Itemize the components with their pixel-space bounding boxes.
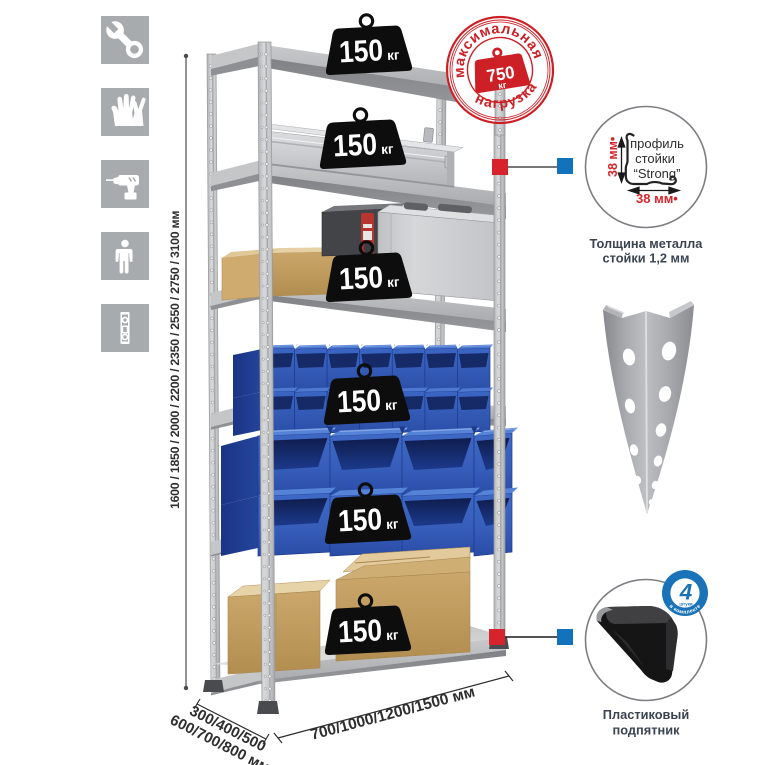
svg-text:1600 / 1850 / 2000 / 2200 / 23: 1600 / 1850 / 2000 / 2200 / 2350 / 2550 … bbox=[168, 211, 182, 509]
svg-text:профиль: профиль bbox=[630, 136, 684, 151]
svg-text:150: 150 bbox=[337, 502, 383, 538]
svg-text:стойки 1,2 мм: стойки 1,2 мм bbox=[602, 251, 689, 266]
svg-text:38 мм•: 38 мм• bbox=[636, 191, 678, 206]
svg-text:кг: кг bbox=[387, 47, 401, 63]
svg-text:150: 150 bbox=[337, 613, 383, 649]
svg-text:150: 150 bbox=[338, 260, 384, 296]
svg-text:150: 150 bbox=[338, 33, 384, 69]
svg-text:150: 150 bbox=[336, 383, 382, 419]
svg-text:Толщина металла: Толщина металла bbox=[590, 236, 704, 251]
svg-text:кг: кг bbox=[387, 274, 401, 290]
svg-text:штуки: штуки bbox=[679, 602, 693, 607]
svg-text:38 мм•: 38 мм• bbox=[606, 137, 620, 177]
svg-text:кг: кг bbox=[381, 141, 395, 157]
svg-text:кг: кг bbox=[385, 397, 399, 413]
svg-text:“Strong”: “Strong” bbox=[634, 166, 681, 181]
svg-text:подпятник: подпятник bbox=[613, 723, 681, 738]
svg-text:700/1000/1200/1500 мм: 700/1000/1200/1500 мм bbox=[309, 684, 477, 744]
svg-text:кг: кг bbox=[386, 627, 400, 643]
svg-text:Пластиковый: Пластиковый bbox=[603, 707, 689, 722]
svg-text:кг: кг bbox=[386, 516, 400, 532]
svg-text:стойки: стойки bbox=[635, 151, 675, 166]
svg-text:150: 150 bbox=[332, 127, 378, 163]
